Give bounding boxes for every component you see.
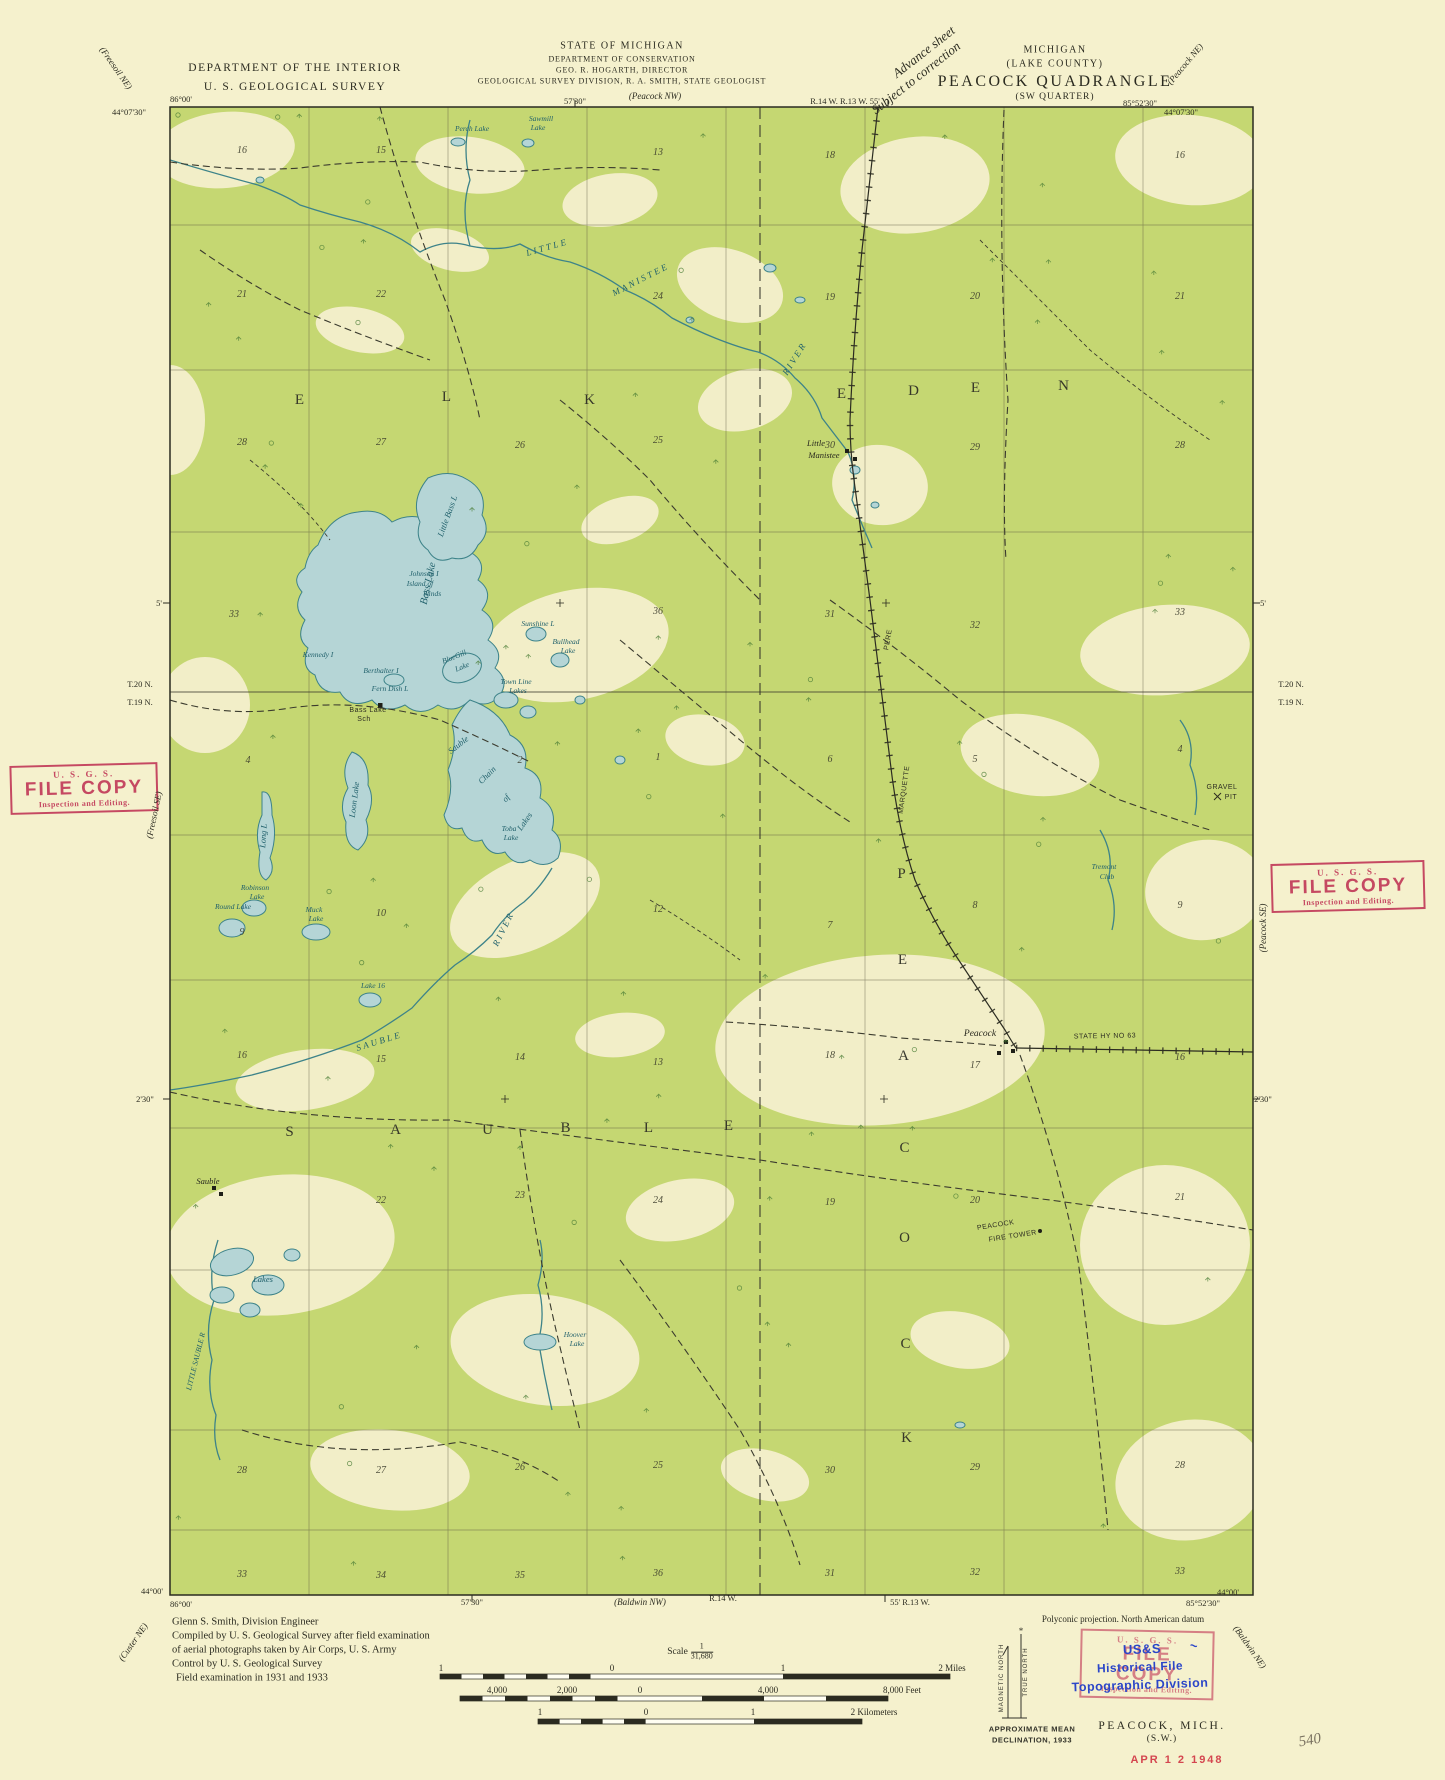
- section-number: 18: [825, 150, 835, 161]
- hoover-lake: [524, 1334, 556, 1350]
- muck-lake: [302, 924, 330, 940]
- margin-text: R.14 W. R.13 W. 55': [810, 96, 880, 106]
- section-number: 23: [515, 1190, 525, 1201]
- title-county: (LAKE COUNTY): [1007, 59, 1104, 70]
- margin-text: MAGNETIC NORTH: [999, 1644, 1005, 1713]
- margin-text: T.19 N.: [1278, 697, 1304, 707]
- section-number: 8: [973, 900, 978, 911]
- section-number: 22: [376, 289, 386, 300]
- margin-text: 2 Miles: [938, 1663, 965, 1673]
- section-number: 24: [653, 291, 663, 302]
- map-label: Lake 16: [360, 981, 385, 990]
- margin-text: 85°52'30": [1186, 1598, 1220, 1608]
- map-label: Island of: [406, 579, 434, 588]
- section-number: 16: [1175, 1052, 1185, 1063]
- map-label: E: [295, 392, 305, 408]
- map-label: L: [644, 1120, 654, 1136]
- section-number: 26: [515, 1462, 525, 1473]
- map-label: GRAVEL: [1207, 784, 1238, 791]
- margin-text: T.19 N.: [127, 697, 153, 707]
- section-number: 28: [237, 1465, 247, 1476]
- map-label: Lake: [308, 914, 324, 923]
- section-number: 9: [240, 927, 245, 938]
- section-number: 33: [1174, 1566, 1185, 1577]
- true-north-star: *: [1019, 1626, 1024, 1636]
- map-label: Robinson: [240, 883, 270, 892]
- section-number: 24: [653, 1195, 663, 1206]
- margin-text: 57'30": [461, 1597, 483, 1607]
- map-label: Peacock: [963, 1029, 997, 1039]
- margin-text: 44°00': [141, 1586, 163, 1596]
- section-number: 31: [824, 609, 835, 620]
- section-number: 30: [824, 440, 835, 451]
- margin-text: 0: [644, 1707, 649, 1717]
- sawmill-lake: [522, 139, 534, 147]
- margin-text: Control by U. S. Geological Survey: [172, 1659, 322, 1670]
- map-label: Tremont: [1092, 862, 1118, 871]
- section-number: 35: [514, 1570, 525, 1581]
- map-label: Hoover: [563, 1330, 587, 1339]
- margin-text: R.14 W.: [709, 1593, 737, 1603]
- file-copy-stamp-left: U. S. G. S. FILE COPY Inspection and Edi…: [9, 762, 158, 815]
- map-label: Lake: [530, 123, 546, 132]
- fire-tower-symbol: [1038, 1229, 1042, 1233]
- bullhead-lake: [551, 653, 569, 667]
- state-geologist-line: GEOLOGICAL SURVEY DIVISION, R. A. SMITH,…: [478, 77, 766, 86]
- map-label: E: [724, 1118, 734, 1134]
- dept-conservation: DEPARTMENT OF CONSERVATION: [548, 55, 695, 64]
- margin-text: (Peacock SE): [1258, 904, 1268, 953]
- map-label: Sauble: [196, 1176, 219, 1186]
- margin-text: 86°00': [170, 94, 192, 104]
- map-label: Kennedy I: [302, 650, 334, 659]
- margin-text: 44°07'30": [1164, 107, 1198, 117]
- file-copy-stamp-right: U. S. G. S. FILE COPY Inspection and Edi…: [1270, 860, 1425, 913]
- section-number: 32: [969, 620, 980, 631]
- map-label: N: [1058, 378, 1070, 394]
- section-number: 22: [376, 1195, 386, 1206]
- topographic-map: Perch LakeSawmillLakeLITTLEMANISTEERIVER…: [0, 0, 1445, 1780]
- section-number: 6: [828, 754, 833, 765]
- section-number: 27: [376, 1465, 387, 1476]
- map-label: S: [285, 1124, 294, 1140]
- stamp-file-copy: FILE COPY: [18, 777, 150, 800]
- margin-text: 1: [439, 1663, 444, 1673]
- section-number: 20: [970, 1195, 980, 1206]
- map-label: Bullhead: [552, 637, 579, 646]
- section-number: 16: [237, 145, 247, 156]
- section-number: 16: [1175, 150, 1185, 161]
- section-number: 28: [237, 437, 247, 448]
- margin-text: DECLINATION, 1933: [992, 1736, 1072, 1745]
- section-number: 29: [970, 442, 980, 453]
- map-label: PIT: [1225, 794, 1238, 801]
- section-number: 28: [1175, 1460, 1185, 1471]
- section-number: 29: [970, 1462, 980, 1473]
- section-number: 12: [653, 904, 663, 915]
- map-label: E: [837, 386, 847, 402]
- map-label: K: [901, 1430, 913, 1446]
- section-number: 14: [515, 1052, 525, 1063]
- map-label: Little: [806, 438, 825, 448]
- section-number: 15: [376, 145, 386, 156]
- section-number: 21: [237, 289, 247, 300]
- margin-text: 8,000 Feet: [883, 1685, 921, 1695]
- section-number: 19: [825, 1197, 835, 1208]
- section-number: 20: [970, 291, 980, 302]
- map-label: Lake: [249, 892, 265, 901]
- margin-text: 55' R.13 W.: [890, 1597, 930, 1607]
- director-line: GEO. R. HOGARTH, DIRECTOR: [556, 66, 688, 75]
- margin-text: Glenn S. Smith, Division Engineer: [172, 1617, 318, 1628]
- title-michigan: MICHIGAN: [1023, 45, 1086, 56]
- title-quadrangle: PEACOCK QUADRANGLE: [938, 73, 1173, 91]
- usgs-topo-sheet: { "colors":{"paper":"#f5f1cd","map_green…: [0, 0, 1445, 1780]
- dept-interior-line1: DEPARTMENT OF THE INTERIOR: [188, 62, 401, 74]
- section-number: 21: [1175, 291, 1185, 302]
- margin-text: (Baldwin NW): [614, 1597, 666, 1607]
- map-label: Fern Dish L: [371, 684, 409, 693]
- section-number: 31: [824, 1568, 835, 1579]
- historical-file-stamp-line1: US&S: [1123, 1641, 1162, 1657]
- section-number: 36: [652, 1568, 663, 1579]
- map-label: Perch Lake: [454, 124, 490, 133]
- section-number: 18: [825, 1050, 835, 1061]
- section-number: 25: [653, 435, 663, 446]
- margin-text: 1: [781, 1663, 786, 1673]
- margin-text: 2'30": [136, 1094, 154, 1104]
- map-label: C: [900, 1336, 911, 1352]
- margin-text: APPROXIMATE MEAN: [989, 1725, 1076, 1734]
- margin-text: 0: [610, 1663, 615, 1673]
- map-label: Town Line: [500, 677, 532, 686]
- section-number: 16: [237, 1050, 247, 1061]
- sunshine-lake: [526, 627, 546, 641]
- margin-text: APR 1 2 1948: [1130, 1754, 1223, 1766]
- map-label: O: [899, 1230, 911, 1246]
- margin-text: 85°52'30": [1123, 98, 1157, 108]
- map-label: Lake: [560, 646, 576, 655]
- map-label: E: [898, 952, 908, 968]
- dept-interior-line2: U. S. GEOLOGICAL SURVEY: [204, 81, 386, 93]
- section-number: 28: [1175, 440, 1185, 451]
- map-label: Round Lake: [214, 902, 252, 911]
- section-number: 1: [656, 752, 661, 763]
- section-number: 33: [236, 1569, 247, 1580]
- margin-text: (Peacock NW): [629, 91, 681, 101]
- margin-text: of aerial photographs taken by Air Corps…: [172, 1645, 397, 1656]
- margin-text: 2 Kilometers: [851, 1707, 898, 1717]
- section-number: 17: [970, 1060, 981, 1071]
- section-number: 10: [376, 908, 386, 919]
- map-label: P: [897, 866, 906, 882]
- margin-text: T.20 N.: [1278, 679, 1304, 689]
- scale-statement: Scale131,680: [667, 1643, 713, 1662]
- map-label: Club: [1100, 872, 1115, 881]
- margin-text: TRUE NORTH: [1023, 1647, 1029, 1696]
- margin-text: 44°00': [1217, 1587, 1239, 1597]
- section-number: 13: [653, 147, 663, 158]
- section-number: 25: [653, 1460, 663, 1471]
- map-label: Bass Lake: [349, 707, 386, 714]
- map-label: Johnson I: [409, 569, 439, 578]
- section-number: 21: [1175, 1192, 1185, 1203]
- section-number: 5: [973, 754, 978, 765]
- margin-text: (S.W.): [1147, 1734, 1177, 1744]
- map-label: L: [442, 389, 452, 405]
- margin-text: T.20 N.: [127, 679, 153, 689]
- map-label: A: [898, 1048, 910, 1064]
- map-label: Lake: [569, 1339, 585, 1348]
- map-label: Sawmill: [529, 114, 553, 123]
- section-number: 36: [652, 606, 663, 617]
- map-label: D: [908, 383, 920, 399]
- section-number: 34: [375, 1570, 386, 1581]
- map-label: U: [482, 1122, 494, 1138]
- section-number: 4: [1178, 744, 1183, 755]
- map-label: STATE HY NO 63: [1074, 1032, 1136, 1040]
- margin-text: 57'30": [564, 96, 586, 106]
- margin-text: 4,000: [758, 1685, 778, 1695]
- map-label: Toba: [502, 824, 517, 833]
- map-label: Muck: [305, 905, 323, 914]
- section-number: 26: [515, 440, 525, 451]
- title-quarter: (SW QUARTER): [1015, 92, 1094, 102]
- margin-text: 5': [1260, 598, 1266, 608]
- scale-denominator: 31,680: [691, 1652, 713, 1662]
- margin-text: 44°07'30": [112, 107, 146, 117]
- margin-text: 1: [538, 1707, 543, 1717]
- map-label: Manistee: [807, 450, 839, 460]
- section-number: 9: [1178, 900, 1183, 911]
- scale-word: Scale: [667, 1647, 688, 1657]
- map-label: Winds: [423, 589, 441, 598]
- map-label: E: [971, 380, 981, 396]
- state-of-michigan: STATE OF MICHIGAN: [560, 41, 684, 52]
- map-label: Lakes: [252, 1274, 274, 1284]
- margin-text: 0: [638, 1685, 643, 1695]
- section-number: 30: [824, 1465, 835, 1476]
- margin-text: 5': [156, 598, 162, 608]
- map-label: Lakes: [508, 686, 527, 695]
- section-number: 27: [376, 437, 387, 448]
- stamp-file-copy: FILE COPY: [1279, 875, 1417, 899]
- map-label: B: [560, 1120, 571, 1136]
- section-number: 13: [653, 1057, 663, 1068]
- perch-lake: [451, 138, 465, 146]
- margin-text: 4,000: [487, 1685, 507, 1695]
- section-number: 19: [825, 292, 835, 303]
- historical-file-stamp-line2: Historical File: [1097, 1659, 1184, 1676]
- map-label: Lake: [503, 833, 519, 842]
- lake-16: [359, 993, 381, 1007]
- margin-text: 1: [751, 1707, 756, 1717]
- section-number: 15: [376, 1054, 386, 1065]
- map-label: A: [390, 1122, 402, 1138]
- scale-numerator: 1: [691, 1643, 713, 1652]
- margin-text: 86°00': [170, 1599, 192, 1609]
- section-number: 32: [969, 1567, 980, 1578]
- margin-text: 2,000: [557, 1685, 577, 1695]
- section-number: 33: [1174, 607, 1185, 618]
- margin-text: PEACOCK, MICH.: [1098, 1720, 1225, 1732]
- map-label: C: [899, 1140, 910, 1156]
- map-label: K: [584, 392, 596, 408]
- map-label: Sunshine L: [521, 619, 554, 628]
- margin-text: Compiled by U. S. Geological Survey afte…: [172, 1631, 430, 1642]
- map-label: Sch: [357, 716, 371, 723]
- section-number: 33: [228, 609, 239, 620]
- map-label: Long L: [257, 823, 269, 849]
- margin-text: 2'30": [1254, 1094, 1272, 1104]
- section-number: 2: [518, 755, 523, 766]
- margin-text: Polyconic projection. North American dat…: [1042, 1614, 1204, 1624]
- map-label: Berthalter I: [363, 666, 399, 675]
- margin-text: Field examination in 1931 and 1933: [176, 1673, 328, 1684]
- section-number: 4: [246, 755, 251, 766]
